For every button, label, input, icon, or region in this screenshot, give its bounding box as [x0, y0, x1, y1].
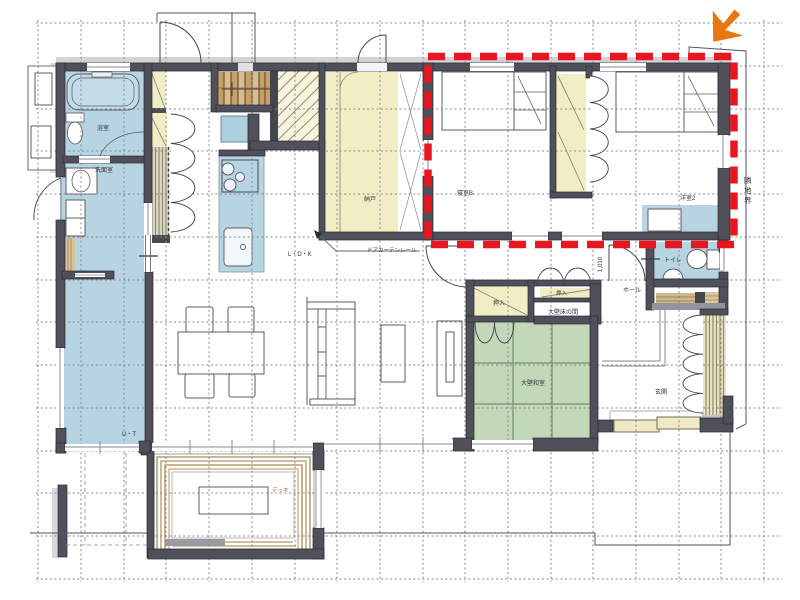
- svg-text:1,010: 1,010: [598, 256, 604, 272]
- svg-text:大壁床の間: 大壁床の間: [548, 308, 578, 316]
- svg-text:ドアカーテンレール: ドアカーテンレール: [367, 247, 417, 254]
- svg-text:洋室2: 洋室2: [680, 194, 696, 202]
- svg-text:押入: 押入: [493, 299, 505, 307]
- svg-text:浴室: 浴室: [97, 124, 109, 132]
- svg-text:納戸: 納戸: [364, 195, 376, 203]
- svg-text:U・T: U・T: [122, 432, 136, 438]
- svg-text:大壁和室: 大壁和室: [521, 379, 545, 387]
- svg-text:押入: 押入: [556, 289, 568, 297]
- svg-text:トイレ: トイレ: [664, 258, 682, 264]
- svg-text:界: 界: [744, 196, 752, 205]
- svg-text:寝室B: 寝室B: [457, 189, 473, 197]
- svg-text:L・D・K: L・D・K: [288, 252, 312, 258]
- svg-text:ホール: ホール: [623, 287, 641, 294]
- svg-text:隣: 隣: [744, 175, 752, 185]
- svg-text:地: 地: [744, 185, 752, 195]
- svg-text:玄関: 玄関: [655, 388, 667, 396]
- svg-text:デッキ: デッキ: [272, 486, 289, 494]
- svg-text:洗面室: 洗面室: [95, 166, 113, 174]
